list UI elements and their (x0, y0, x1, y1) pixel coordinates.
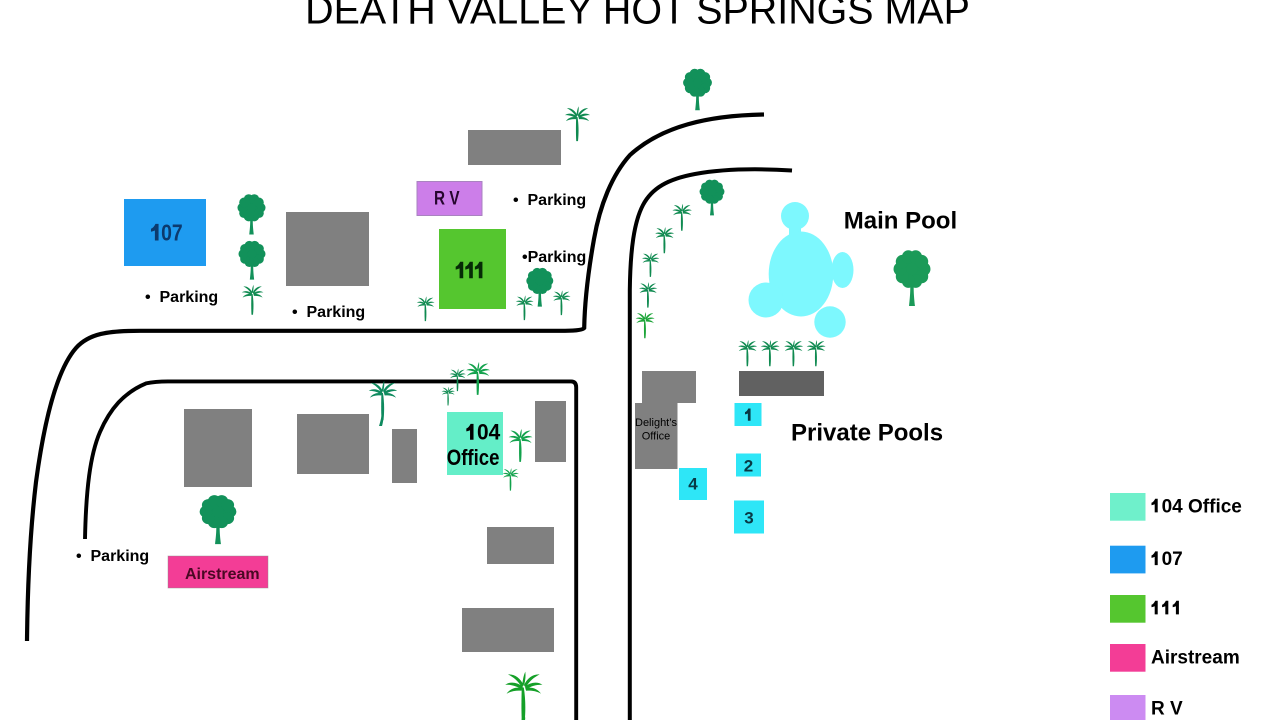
svg-text:•Parking: •Parking (522, 249, 586, 266)
svg-text:Office: Office (642, 431, 671, 443)
svg-text:• Parking: • Parking (145, 289, 218, 306)
svg-text:3: 3 (744, 509, 753, 528)
svg-text:2: 2 (744, 456, 753, 475)
svg-text:• Parking: • Parking (76, 548, 149, 565)
svg-text:Main Pool: Main Pool (844, 207, 957, 234)
svg-text:• Parking: • Parking (292, 304, 365, 321)
svg-text:04: 04 (477, 420, 501, 445)
svg-text:Delight’s: Delight’s (635, 417, 677, 429)
svg-text:R V: R V (1151, 698, 1183, 719)
svg-text:07: 07 (1162, 549, 1183, 570)
svg-text:Airstream: Airstream (1151, 647, 1240, 668)
svg-text:Office: Office (447, 445, 500, 470)
svg-text:Private Pools: Private Pools (791, 420, 943, 447)
svg-text:07: 07 (161, 220, 183, 246)
svg-text:R V: R V (434, 188, 460, 209)
svg-text:4: 4 (688, 475, 698, 494)
svg-text:Airstream: Airstream (185, 566, 260, 583)
svg-text:• Parking: • Parking (513, 192, 586, 209)
svg-text:DEATH VALLEY HOT SPRINGS MAP: DEATH VALLEY HOT SPRINGS MAP (305, 0, 970, 33)
svg-text:04 Office: 04 Office (1162, 496, 1242, 517)
